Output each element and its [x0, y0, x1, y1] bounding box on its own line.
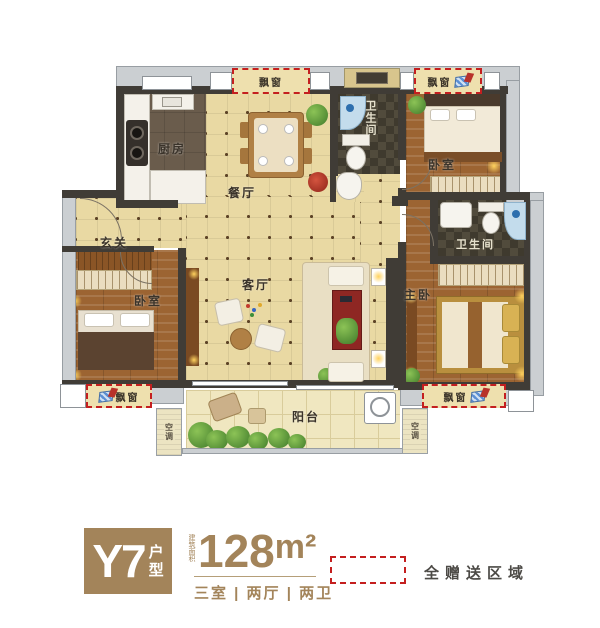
bay-window-bedroom2: 飘窗 [414, 68, 482, 94]
sofa-cushion [328, 362, 364, 382]
balcony-slider-panel-2 [296, 385, 394, 390]
wall-bath2-left [430, 200, 438, 262]
layout-spec: 三室 | 两厅 | 两卫 [194, 582, 333, 603]
kitchen-window [142, 76, 192, 90]
pillar-top-2 [310, 72, 330, 90]
pillow [456, 109, 476, 121]
vanity-sink [336, 172, 362, 200]
bay-window-bedroom1: 飘窗 [86, 384, 152, 408]
kitchen-counter-bottom [150, 170, 206, 204]
ac-closet-right: 空调 [402, 408, 428, 454]
bay-window-label: 飘窗 [428, 74, 452, 89]
area-divider [194, 576, 316, 577]
pillar-bottom-left [60, 384, 86, 408]
balcony-rail [182, 448, 404, 454]
balcony-plant [206, 430, 228, 450]
ac-label: 空调 [164, 423, 175, 441]
ac-closet-left: 空调 [156, 408, 182, 456]
sofa-cushion [328, 266, 364, 286]
toilet-bowl [346, 146, 366, 170]
bay-window-dining: 飘窗 [232, 68, 310, 94]
area-unit: m² [275, 528, 317, 567]
pillow [502, 304, 520, 332]
outer-wall-right-lower [530, 200, 544, 396]
ac-label: 空调 [410, 422, 421, 440]
plate [258, 156, 268, 166]
wall-entry-top [62, 190, 120, 198]
wall-bedroom2-left [398, 92, 406, 160]
dresser [407, 296, 417, 372]
washing-machine-drum [370, 397, 390, 417]
bed-duvet [78, 332, 154, 370]
bathroom-high-window-inset [356, 72, 388, 84]
wall-bedroom2-bottom [398, 192, 530, 200]
pillar-top-3 [400, 72, 414, 90]
potted-plant [408, 96, 426, 114]
toy-scatter [250, 313, 254, 317]
room-label-dining: 餐厅 [228, 184, 256, 201]
outer-wall-left [62, 196, 76, 386]
toilet-bowl [482, 212, 500, 234]
area-figure: 128 m² [198, 528, 316, 574]
room-label-master: 主卧 [404, 286, 432, 303]
outer-wall-right-upper [506, 80, 520, 200]
table-decor [340, 296, 352, 302]
room-label-kitchen: 厨房 [158, 140, 186, 157]
balcony-plant [268, 428, 290, 448]
unit-type-char-top: 户 [149, 545, 164, 560]
balcony-slider-panel-1 [192, 381, 288, 386]
wall-dining-bath-divider [330, 92, 338, 176]
area-note: 建筑面积 [188, 534, 195, 568]
room-label-balcony: 阳台 [292, 408, 320, 425]
cushion-icon [454, 75, 470, 88]
room-label-entry: 玄关 [100, 234, 128, 251]
pillar-bottom-right [508, 390, 534, 412]
room-label-bathroom1: 卫生间 [362, 100, 378, 136]
room-label-bedroom2: 卧室 [428, 156, 456, 173]
floor-plan-canvas: 飘窗 飘窗 飘窗 飘窗 [0, 0, 600, 628]
pillow [502, 336, 520, 364]
area-value: 128 [198, 528, 275, 574]
wall-lamp-glow [372, 270, 385, 283]
gift-area-swatch [330, 556, 406, 584]
gift-area-legend: 全赠送区域 [424, 562, 529, 583]
vanity-sink [440, 202, 472, 228]
cushion-icon [470, 390, 486, 403]
plate [284, 156, 294, 166]
toilet-tank [478, 202, 504, 212]
wall-right-upper-inner [500, 92, 506, 194]
balcony-table [248, 408, 266, 424]
plate [284, 124, 294, 134]
bed-headboard [424, 94, 502, 106]
console-lamp-glow [188, 354, 200, 366]
side-table [230, 328, 252, 350]
balcony-plant [226, 426, 250, 448]
shower-drain [512, 210, 520, 218]
room-label-living: 客厅 [242, 276, 270, 293]
shower-drain [346, 104, 354, 112]
console-table [186, 268, 199, 366]
pillar-top-1 [210, 72, 232, 90]
unit-type-badge: Y7 户 型 [84, 528, 172, 594]
wall-bath2-bottom [430, 256, 530, 264]
stove-burner [130, 126, 144, 140]
unit-type-char-bottom: 型 [149, 563, 164, 578]
potted-plant [306, 104, 328, 126]
master-bed-runner [468, 302, 482, 368]
wall-living-master [386, 258, 400, 384]
pillow [430, 109, 450, 121]
bay-window-label: 飘窗 [259, 74, 283, 89]
red-flower-plant [308, 172, 328, 192]
bay-window-label: 飘窗 [444, 389, 468, 404]
wall-lamp-glow [372, 352, 385, 365]
console-lamp-glow [188, 268, 200, 280]
master-wardrobe [438, 264, 528, 286]
toy-scatter [252, 308, 256, 312]
pillow [84, 313, 114, 327]
room-label-bathroom2: 卫生间 [456, 236, 495, 252]
unit-model: Y7 [92, 538, 144, 584]
cushion-icon [98, 390, 114, 403]
wall-kitchen-bottom [116, 200, 178, 208]
plate [258, 124, 268, 134]
toy-scatter [258, 303, 262, 307]
table-plant [336, 318, 358, 344]
bay-window-master: 飘窗 [422, 384, 506, 408]
pillow [120, 313, 150, 327]
toy-scatter [246, 304, 250, 308]
stove-burner [130, 146, 144, 160]
kitchen-sink-basin [162, 97, 182, 107]
wall-bedroom1-right [178, 248, 186, 384]
bay-window-label: 飘窗 [116, 389, 140, 404]
room-label-bedroom1: 卧室 [134, 292, 162, 309]
pillar-top-4 [484, 72, 500, 90]
